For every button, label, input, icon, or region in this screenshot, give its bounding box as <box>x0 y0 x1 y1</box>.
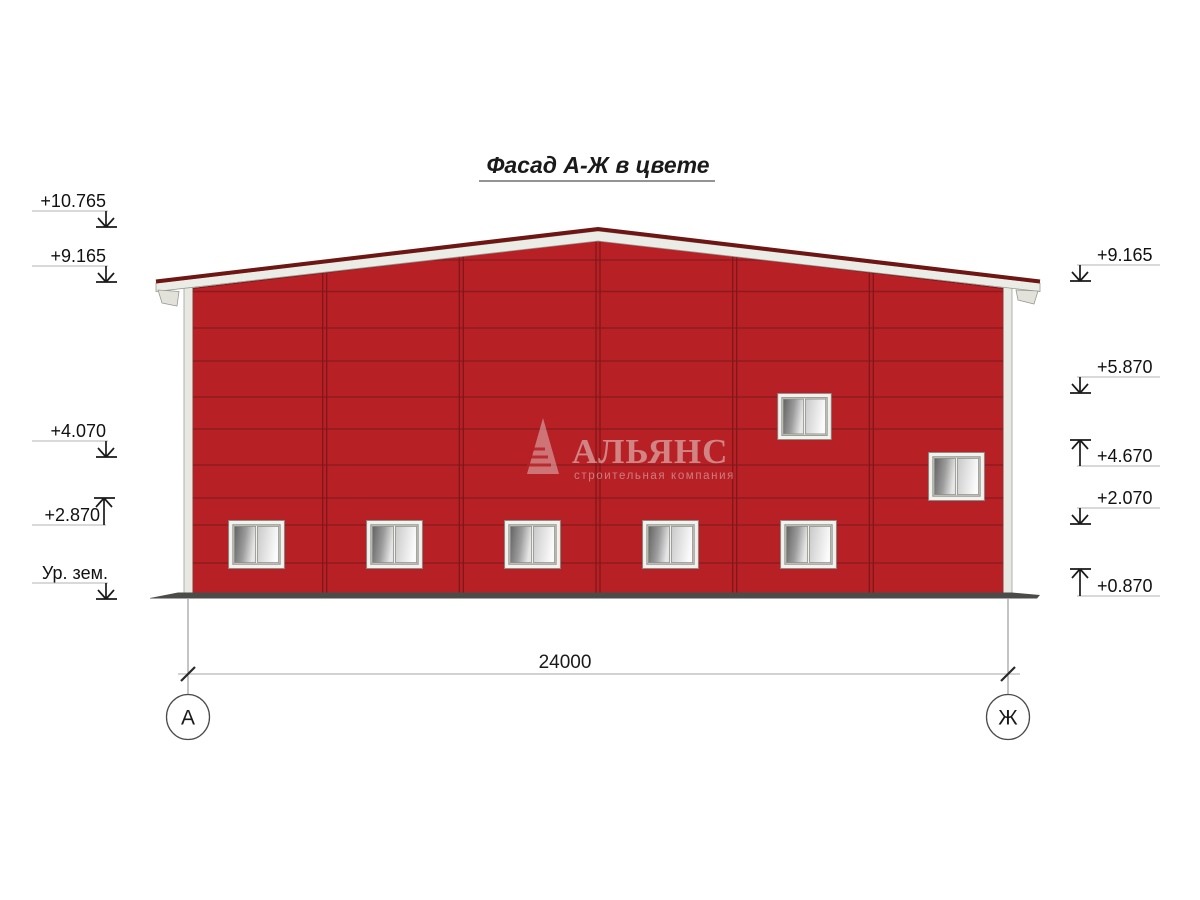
elevation-value: +4.670 <box>1097 446 1153 466</box>
elevation-mark: +9.165 <box>32 246 117 282</box>
elevation-arrow-down-icon <box>96 266 117 282</box>
elevation-value: +0.870 <box>1097 576 1153 596</box>
watermark-tagline: строительная компания <box>574 470 735 482</box>
elevation-arrow-up-icon <box>1070 569 1091 596</box>
axis-bubble-zh: Ж <box>987 695 1030 740</box>
window <box>505 520 561 568</box>
drawing-title: Фасад А-Ж в цвете <box>479 152 715 181</box>
window-upper <box>778 393 832 439</box>
window <box>781 520 837 568</box>
elevation-arrow-down-icon <box>1070 377 1091 393</box>
elevation-mark: Ур. зем. <box>32 563 117 599</box>
ground-line <box>150 593 1040 599</box>
elevation-value: +9.165 <box>1097 245 1153 265</box>
elevation-value: +5.870 <box>1097 357 1153 377</box>
axis-label-zh: Ж <box>998 707 1018 730</box>
window <box>367 520 423 568</box>
elevation-arrow-down-icon <box>1070 508 1091 524</box>
elevation-mark: +9.165 <box>1070 245 1160 281</box>
elevation-arrow-down-icon <box>1070 265 1091 281</box>
elevation-arrow-down-icon <box>96 441 117 457</box>
axis-label-a: А <box>181 707 195 730</box>
window <box>229 520 285 568</box>
drawing-svg: Фасад А-Ж в цвете <box>0 0 1200 900</box>
window-upper <box>929 452 985 500</box>
elevation-value: +2.870 <box>44 505 100 525</box>
axis-bubble-a: А <box>167 695 210 740</box>
elevation-value: +10.765 <box>40 191 106 211</box>
elevation-drawing: Фасад А-Ж в цвете <box>0 0 1200 900</box>
gutter-head-left <box>158 290 179 306</box>
elevation-mark: +0.870 <box>1070 569 1160 596</box>
dimension-chain: 24000 А Ж <box>167 599 1030 740</box>
building-facade: АЛЬЯНС строительная компания <box>150 229 1040 599</box>
elevation-value: +2.070 <box>1097 488 1153 508</box>
facade-wall <box>188 240 1008 593</box>
elevation-value: +9.165 <box>50 246 106 266</box>
elevation-arrow-down-icon <box>96 583 117 599</box>
elevation-marks-left: +10.765 +9.165 +4.070 +2.870 Ур. зем. <box>32 191 117 599</box>
corner-trim-right <box>1004 287 1013 593</box>
elevation-mark: +2.870 <box>32 498 115 525</box>
elevation-mark: +10.765 <box>32 191 117 227</box>
elevation-marks-right: +9.165 +5.870 +4.670 +2.070 +0.870 <box>1070 245 1160 596</box>
elevation-arrow-up-icon <box>1070 440 1091 466</box>
elevation-value: +4.070 <box>50 421 106 441</box>
elevation-mark: +4.070 <box>32 421 117 457</box>
elevation-mark: +5.870 <box>1070 357 1160 393</box>
dimension-value: 24000 <box>539 652 592 673</box>
watermark-brand: АЛЬЯНС <box>572 432 728 471</box>
elevation-value: Ур. зем. <box>42 563 108 583</box>
window <box>643 520 699 568</box>
gutter-head-right <box>1016 290 1038 304</box>
elevation-mark: +2.070 <box>1070 488 1160 524</box>
elevation-mark: +4.670 <box>1070 440 1160 466</box>
page-title: Фасад А-Ж в цвете <box>486 152 709 178</box>
corner-trim-left <box>184 287 193 593</box>
elevation-arrow-down-icon <box>96 211 117 227</box>
